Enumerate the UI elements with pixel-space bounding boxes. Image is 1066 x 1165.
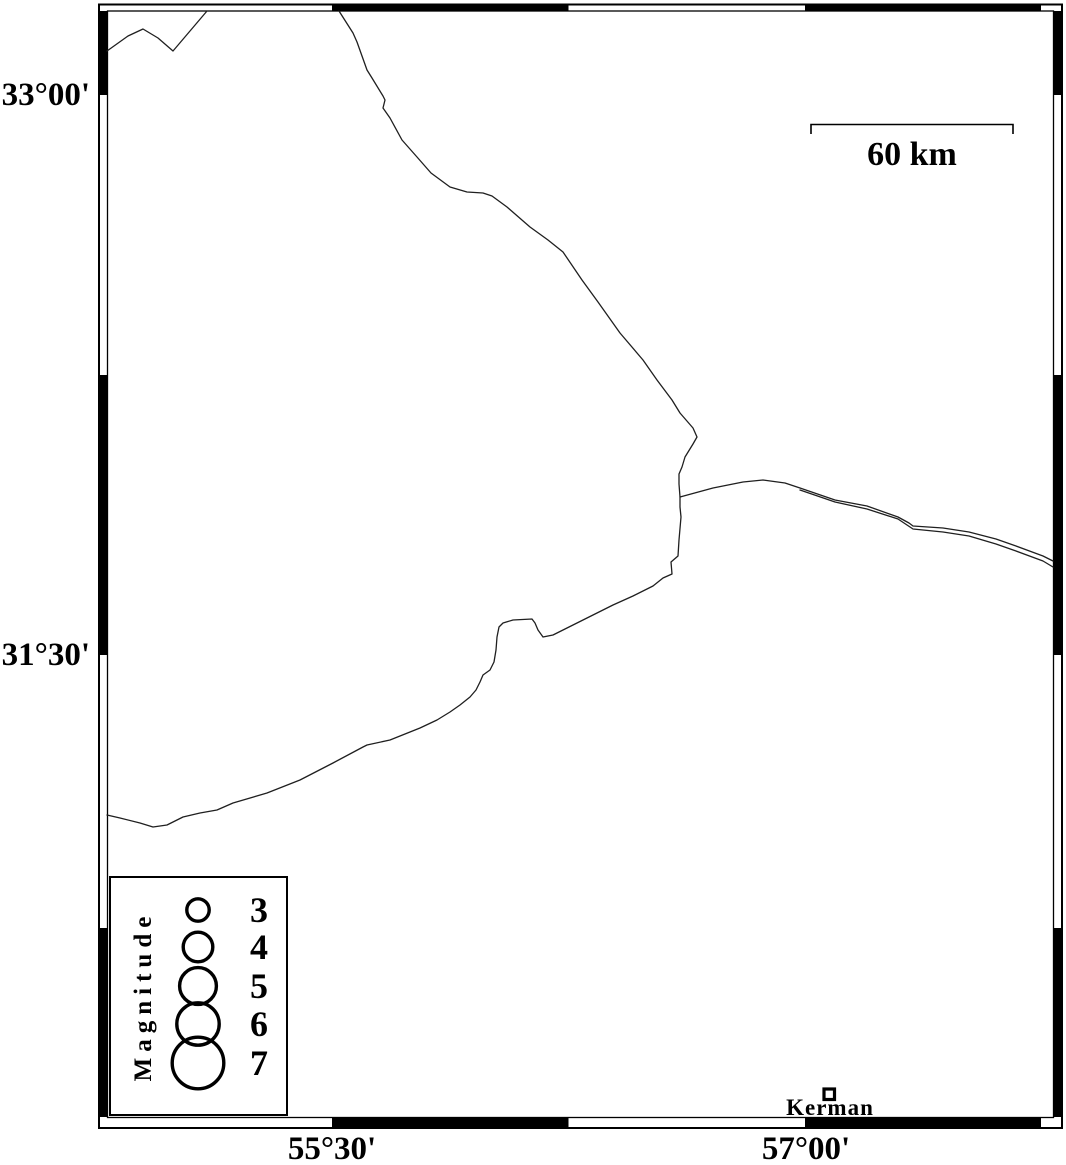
map-figure [0,0,1066,1165]
map-line-main-boundary [107,11,697,827]
legend-magnitude-value-3: 3 [236,889,282,931]
scale-bar-label: 60 km [826,137,998,173]
map-line-east-boundary-south [800,490,1053,567]
map-boundary-lines [107,11,1053,827]
city-label-kerman: Kerman [758,1096,902,1120]
map-canvas: 33°00' 31°30' 55°30' 57°00' 60 km Kerman… [0,0,1066,1165]
legend-magnitude-value-6: 6 [236,1003,282,1045]
lat-label-31-30: 31°30' [0,635,90,675]
legend-magnitude-value-5: 5 [236,965,282,1007]
legend-title: Magnitude [130,911,158,1082]
legend-magnitude-value-4: 4 [236,926,282,968]
scale-bar [811,125,1013,135]
lon-label-55-30: 55°30' [242,1129,422,1165]
legend-magnitude-value-7: 7 [236,1042,282,1084]
lat-label-33-00: 33°00' [0,75,90,115]
lon-label-57-00: 57°00' [716,1129,896,1165]
map-line-east-boundary-north [680,480,1053,561]
map-line-northwest-zigzag [107,11,207,51]
